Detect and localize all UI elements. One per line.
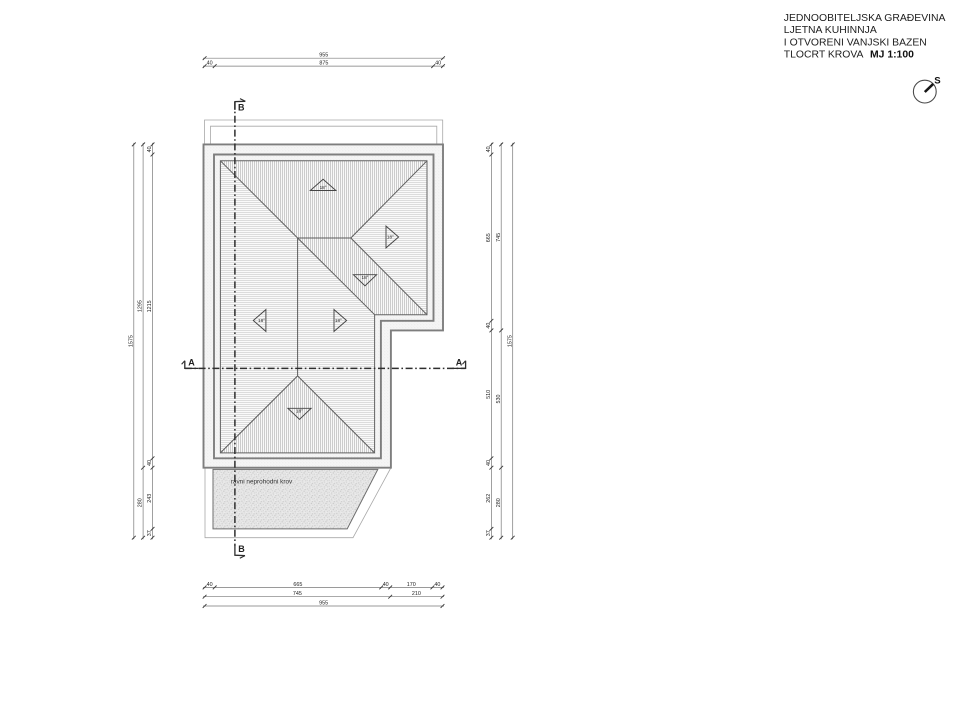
svg-text:170: 170 [407,582,416,588]
svg-text:18°: 18° [296,409,303,414]
svg-text:745: 745 [496,233,502,242]
svg-text:955: 955 [319,600,328,606]
svg-text:40: 40 [147,460,153,466]
svg-text:JEDNOOBITELJSKA GRAĐEVINA: JEDNOOBITELJSKA GRAĐEVINA [784,13,946,24]
svg-text:LJETNA KUHINNJA: LJETNA KUHINNJA [784,25,877,36]
svg-text:40: 40 [486,323,492,329]
svg-text:40: 40 [434,582,440,588]
svg-text:18°: 18° [258,318,265,323]
svg-text:18°: 18° [362,275,369,280]
svg-text:37: 37 [486,530,492,536]
svg-text:A: A [456,358,463,368]
svg-text:280: 280 [138,498,144,507]
svg-text:243: 243 [147,494,153,503]
svg-text:1575: 1575 [507,335,513,347]
svg-text:TLOCRT KROVA: TLOCRT KROVA [784,50,864,61]
svg-text:262: 262 [486,494,492,503]
svg-text:MJ 1:100: MJ 1:100 [870,50,914,61]
svg-text:665: 665 [293,582,302,588]
svg-text:40: 40 [435,61,441,67]
svg-text:745: 745 [293,591,302,597]
svg-text:40: 40 [207,582,213,588]
svg-text:40: 40 [147,146,153,152]
svg-text:875: 875 [319,61,328,67]
svg-text:210: 210 [412,591,421,597]
svg-text:40: 40 [383,582,389,588]
svg-text:1215: 1215 [147,300,153,312]
svg-text:18°: 18° [320,185,327,190]
svg-text:510: 510 [486,390,492,399]
svg-text:40: 40 [486,460,492,466]
svg-text:40: 40 [207,61,213,67]
svg-text:40: 40 [486,146,492,152]
svg-text:955: 955 [319,53,328,59]
svg-text:665: 665 [486,233,492,242]
svg-text:I OTVORENI VANJSKI BAZEN: I OTVORENI VANJSKI BAZEN [784,37,927,48]
svg-text:A: A [188,358,195,368]
svg-text:37: 37 [147,530,153,536]
svg-text:B: B [238,544,245,554]
svg-text:18°: 18° [335,318,342,323]
svg-text:S: S [934,76,941,87]
svg-text:1295: 1295 [138,300,144,312]
svg-text:1575: 1575 [128,335,134,347]
svg-text:ravni neprohodni krov: ravni neprohodni krov [231,478,293,485]
svg-text:18°: 18° [387,235,394,240]
svg-text:280: 280 [496,498,502,507]
svg-text:B: B [238,103,245,113]
svg-text:530: 530 [496,395,502,404]
